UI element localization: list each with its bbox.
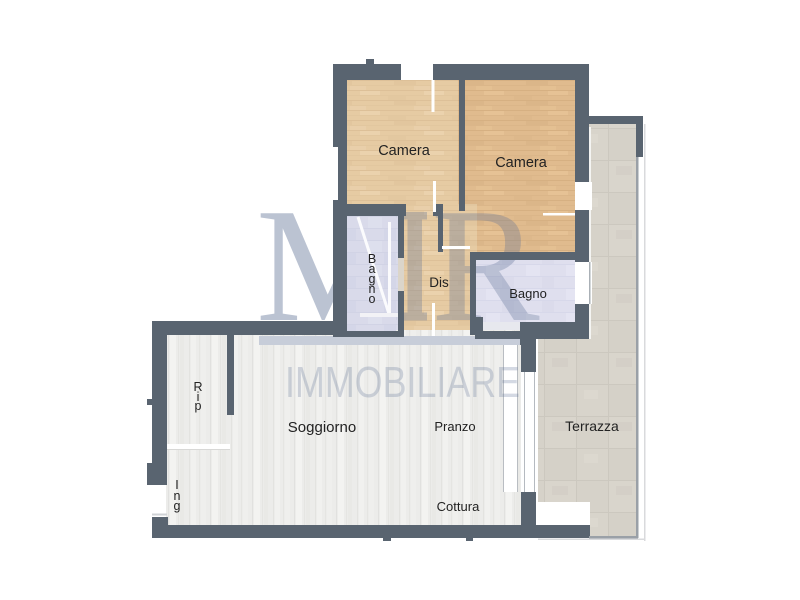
svg-text:Dis: Dis <box>429 275 449 290</box>
svg-text:g: g <box>174 499 181 513</box>
svg-text:o: o <box>369 292 376 306</box>
svg-text:Pranzo: Pranzo <box>434 419 475 434</box>
svg-text:Soggiorno: Soggiorno <box>288 419 356 436</box>
svg-text:Cottura: Cottura <box>437 499 480 514</box>
svg-text:IMMOBILIARE: IMMOBILIARE <box>285 358 520 407</box>
svg-text:Camera: Camera <box>378 143 431 159</box>
svg-text:Terrazza: Terrazza <box>565 418 619 434</box>
svg-text:Camera: Camera <box>495 155 548 171</box>
svg-text:Bagno: Bagno <box>509 286 547 301</box>
svg-text:p: p <box>195 399 202 413</box>
